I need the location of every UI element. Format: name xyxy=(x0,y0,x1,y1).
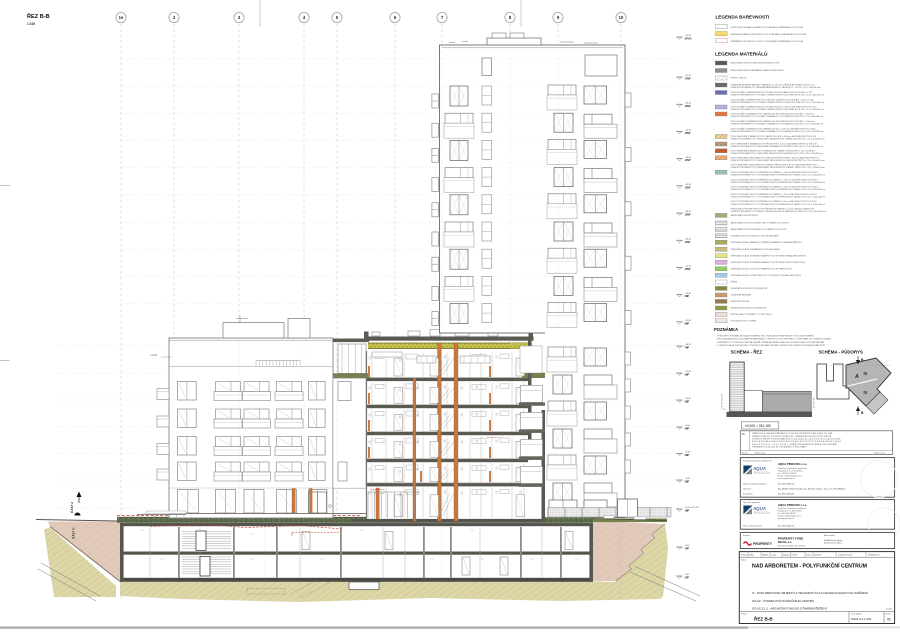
svg-text:B.3.02, B.3.04, B4.01, B.4.02,: B.3.02, B.3.04, B4.01, B.4.02, B.6.04, B… xyxy=(752,441,842,443)
svg-text:AQUA PROCON s.r.o.: AQUA PROCON s.r.o. xyxy=(778,462,808,466)
svg-text:OSBICE PORTHERM TYP O NENOSNÉ: OSBICE PORTHERM TYP O NENOSNÉ Z BROUŠENÝ… xyxy=(731,166,825,169)
svg-text:SO02.3.1.1.202: SO02.3.1.1.202 xyxy=(851,617,872,621)
svg-text:9NP: 9NP xyxy=(685,295,690,298)
svg-text:Ing. Petr Malaník: Ing. Petr Malaník xyxy=(778,493,795,496)
svg-text:7NP: 7NP xyxy=(685,347,690,350)
svg-text:A: A xyxy=(854,374,859,380)
svg-text:2PP 1PP 1NP 2NP: 2PP 1PP 1NP 2NP xyxy=(722,393,724,408)
svg-text:1e: 1e xyxy=(119,15,124,20)
svg-text:ŽELEZOBETONOVÉ PREFABRIKOVANÉ: ŽELEZOBETONOVÉ PREFABRIKOVANÉ KONSTRUKCE xyxy=(731,69,785,72)
svg-text:+14,31: +14,31 xyxy=(150,354,158,357)
svg-text:HUMÓZNÍ VRSTVA: HUMÓZNÍ VRSTVA xyxy=(731,300,750,303)
svg-text:1NP: 1NP xyxy=(685,510,690,513)
svg-text:ÚPRAVY DISPOZIC V BYTECH 2.NP: ÚPRAVY DISPOZIC V BYTECH 2.NP AŽ 7.NP - … xyxy=(752,435,832,438)
svg-text:2NP: 2NP xyxy=(685,481,690,484)
svg-text:OSBICE PORTHERM TYP O NENOSNÉ: OSBICE PORTHERM TYP O NENOSNÉ Z AKUSTICK… xyxy=(731,152,824,155)
svg-text:TEPELNÁ IZOLACE Z EXPANDOVANÉH: TEPELNÁ IZOLACE Z EXPANDOVANÉHO POLYSTYR… xyxy=(731,261,806,264)
svg-text:ZDIVO Z PÓROBETONOVÝCH PŘESNÝC: ZDIVO Z PÓROBETONOVÝCH PŘESNÝCH TVÁRNIC … xyxy=(731,193,818,196)
svg-text:1.23: 1.23 xyxy=(575,559,579,561)
svg-text:Datum revize: Datum revize xyxy=(874,452,885,455)
svg-text:SO 02.3.1.1 - ARCHITEKTONICKO: SO 02.3.1.1 - ARCHITEKTONICKO STAVEBNÍ Ř… xyxy=(752,605,827,610)
svg-text:Příloha: Příloha xyxy=(741,614,748,616)
svg-text:Měřítko: Měřítko xyxy=(762,553,770,556)
svg-text:Hlavní inženýr projektu: Hlavní inženýr projektu xyxy=(743,524,762,527)
svg-text:ZMĚNĚNÉ KONSTRUKCE OPROTI PLAT: ZMĚNĚNÉ KONSTRUKCE OPROTI PLATNÉMU STAVE… xyxy=(731,40,804,43)
svg-text:Kontroloval: Kontroloval xyxy=(743,493,753,496)
svg-text:06: 06 xyxy=(887,617,891,621)
svg-text:ZDIVO NENOSNÉ Z BROUŠENÝCH TVÁ: ZDIVO NENOSNÉ Z BROUŠENÝCH TVÁRNIC PŘÍČK… xyxy=(731,164,819,167)
svg-text:1.23: 1.23 xyxy=(470,530,474,532)
svg-text:ZPĚTNÝ ZÁSYP HUTNĚNÝ PO VRSTVÁ: ZPĚTNÝ ZÁSYP HUTNĚNÝ PO VRSTVÁCH xyxy=(731,313,773,316)
svg-text:Stupeň: Stupeň xyxy=(783,553,789,556)
svg-text:OSBICE PORTHERM TYP O Z PÓROBE: OSBICE PORTHERM TYP O Z PÓROBETONOVÝCH P… xyxy=(731,181,826,184)
svg-text:ZDIVO Z PÓROBETONOVÝCH PŘESNÝC: ZDIVO Z PÓROBETONOVÝCH PŘESNÝCH TVÁRNIC … xyxy=(731,200,818,203)
svg-text:SÁDROKARTONOVÉ PODHLEDY S POŽÁ: SÁDROKARTONOVÉ PODHLEDY S POŽÁRNÍ ODOLNO… xyxy=(731,228,788,231)
svg-text:ZTRACENÉ BEDNĚNÍ: ZTRACENÉ BEDNĚNÍ xyxy=(731,294,752,297)
svg-text:- PŮVODNÍ BAREVNOST A OZNAČENÍ: - PŮVODNÍ BAREVNOST A OZNAČENÍ MATERIÁLŮ… xyxy=(716,338,832,341)
svg-text:POZNÁMKA: POZNÁMKA xyxy=(714,327,738,332)
svg-text:Investor: Investor xyxy=(743,534,750,537)
svg-text:NEREALIZOVANÉ KONSTRUKCE DLE P: NEREALIZOVANÉ KONSTRUKCE DLE PLATNÉHO ST… xyxy=(731,33,807,36)
svg-text:KONSTRUKCE REALIZOVANÉ DLE PLA: KONSTRUKCE REALIZOVANÉ DLE PLATNÉHO STAV… xyxy=(731,26,804,29)
svg-text:ŽELEZOBETONOVÉ KONSTRUKCE MONO: ŽELEZOBETONOVÉ KONSTRUKCE MONOLITICKÉ xyxy=(731,62,780,65)
svg-text:Vyhotovil: Vyhotovil xyxy=(743,488,751,491)
svg-text:ZTRACENÉ BEDNĚNÍ BEDNÍCÍ TVÁRN: ZTRACENÉ BEDNĚNÍ BEDNÍCÍ TVÁRNICE TL. 25… xyxy=(731,84,816,87)
svg-text:VEGETAČNÍ SOUVRSTVÍ INTENZIVNÍ: VEGETAČNÍ SOUVRSTVÍ INTENZIVNÍ xyxy=(731,307,767,310)
svg-text:11NP: 11NP xyxy=(685,241,691,244)
svg-text:SÁDROKARTONOVÉ PODHLEDY BEZ PO: SÁDROKARTONOVÉ PODHLEDY BEZ POŽÁRNÍ ODOL… xyxy=(731,222,790,225)
svg-text:OSBICE PORTHERM TYP O NENOSNÉ: OSBICE PORTHERM TYP O NENOSNÉ Z BENÁTSKÝ… xyxy=(731,138,826,141)
svg-text:ZDIVO NENOSNÉ Z BENÁTSKÝCH TVÁ: ZDIVO NENOSNÉ Z BENÁTSKÝCH TVÁRNIC BLOKŮ… xyxy=(731,135,817,138)
svg-text:ZDIVO NENOSNÉ Z BROUŠENÝCH CIH: ZDIVO NENOSNÉ Z BROUŠENÝCH CIHELNÝCH PŘÍ… xyxy=(731,156,820,159)
svg-text:VEGETAČNÍ SOUVRSTVÍ EXTENZIVNÍ: VEGETAČNÍ SOUVRSTVÍ EXTENZIVNÍ xyxy=(731,287,768,290)
svg-text:1.23: 1.23 xyxy=(530,559,534,561)
svg-text:AQUA PROCON s.r.o.: AQUA PROCON s.r.o. xyxy=(778,503,808,507)
svg-text:06/2015: 06/2015 xyxy=(814,554,822,556)
svg-text:Formát: Formát xyxy=(741,553,748,556)
svg-text:ZMĚNY DLE PODKLADŮ PŘEDANÝCH 1: ZMĚNY DLE PODKLADŮ PŘEDANÝCH 17.04.2020 … xyxy=(752,432,833,435)
svg-text:1.23: 1.23 xyxy=(160,559,164,561)
svg-text:OSBICE PORTHERM TYP O Z PÓROBE: OSBICE PORTHERM TYP O Z PÓROBETONOVÝCH P… xyxy=(731,196,826,199)
svg-text:SICAV, a.s.: SICAV, a.s. xyxy=(778,540,793,544)
svg-text:III: III xyxy=(864,371,868,376)
svg-text:1PP: 1PP xyxy=(685,548,690,551)
svg-text:6NP: 6NP xyxy=(685,374,690,377)
svg-text:PROCON: PROCON xyxy=(754,471,771,475)
svg-text:10: 10 xyxy=(619,15,624,20)
svg-text:Ing. Bedřich Polachovský, Ing.: Ing. Bedřich Polachovský, Ing. Simona Vr… xyxy=(778,488,847,491)
svg-text:1.23: 1.23 xyxy=(480,559,484,561)
svg-text:3NP: 3NP xyxy=(685,454,690,457)
svg-text:Projektant obj./zodp. projekta: Projektant obj./zodp. projektant FV xyxy=(743,459,773,462)
svg-text:TEPELNÁ IZOLACE Z MINERÁLNÍCH: TEPELNÁ IZOLACE Z MINERÁLNÍCH VLÁKEN (MW… xyxy=(731,248,781,251)
svg-text:- V OBJEKTU BUDE PROVEDENO VYH: - V OBJEKTU BUDE PROVEDENO VYHODNOCENÍ R… xyxy=(716,344,825,347)
svg-text:- VEŠKERÉ KÓTY KONTROLOVAT NA: - VEŠKERÉ KÓTY KONTROLOVAT NA STAVBĚ, PŘ… xyxy=(716,341,824,344)
svg-text:ČÁST C: ČÁST C xyxy=(71,527,76,539)
svg-text:PROCON: PROCON xyxy=(754,511,771,515)
svg-text:TEPELNÁ IZOLACE ZAMEZUJÍCÍ ŠÍŘ: TEPELNÁ IZOLACE ZAMEZUJÍCÍ ŠÍŘENÍ PLAMEN… xyxy=(731,241,803,244)
svg-text:2PP: 2PP xyxy=(685,577,690,580)
svg-text:ZDIVO NOSNÉ Z VÁPENOPÍSKOVÝCH: ZDIVO NOSNÉ Z VÁPENOPÍSKOVÝCH CIHEL BLOK… xyxy=(731,106,817,109)
svg-text:Ing. Petr Malaník: Ing. Petr Malaník xyxy=(778,482,795,485)
svg-text:LEGENDA BAREVNOSTI: LEGENDA BAREVNOSTI xyxy=(716,15,770,20)
svg-text:16NP: 16NP xyxy=(685,105,691,108)
svg-text:OSBICE PORTHERM TYP O NENOSNÉ: OSBICE PORTHERM TYP O NENOSNÉ Z BROUŠENÝ… xyxy=(731,159,825,162)
svg-text:Revize: Revize xyxy=(886,614,892,616)
svg-text:OSBICE PORTHERM TYP DÍVKA Z PÓ: OSBICE PORTHERM TYP DÍVKA Z PÓROBETONOVÝ… xyxy=(731,210,827,213)
svg-text:DSPS: DSPS xyxy=(792,554,798,556)
svg-text:PROPERITY: PROPERITY xyxy=(753,542,773,546)
svg-text:1NP 2NP 3NP: 1NP 2NP 3NP xyxy=(814,396,816,408)
svg-text:12NP: 12NP xyxy=(685,214,691,217)
svg-text:OSBICE PORTHERM TYP O NOSNÉ Z: OSBICE PORTHERM TYP O NOSNÉ Z VÁPENOPÍSK… xyxy=(731,108,825,111)
svg-text:ZDIVO NENOSNÉ Z AKUSTICKÝCH BE: ZDIVO NENOSNÉ Z AKUSTICKÝCH BEDNÍCÍCH TV… xyxy=(731,149,816,152)
svg-text:TEPELNÁ IZOLACE Z EXTRUDOVANÉH: TEPELNÁ IZOLACE Z EXTRUDOVANÉHO POLYSTYR… xyxy=(731,267,793,270)
svg-text:17NP: 17NP xyxy=(685,78,691,81)
svg-text:Ing. Petr Malaník: Ing. Petr Malaník xyxy=(778,524,795,527)
svg-text:Název: Název xyxy=(741,560,746,562)
svg-text:ZDIVO Z PÓROBETONOVÝCH PŘESNÝC: ZDIVO Z PÓROBETONOVÝCH PŘESNÝCH TVÁRNIC … xyxy=(731,186,819,189)
svg-text:1.23: 1.23 xyxy=(430,559,434,561)
svg-text:OSBICE PORTHERM TYP CENÉ BEDNĚ: OSBICE PORTHERM TYP CENÉ BEDNĚNÍ BEDNÍCÍ… xyxy=(731,86,821,89)
svg-text:ZDIVO Z PÓROBETONOVÝCH PŘESNÝC: ZDIVO Z PÓROBETONOVÝCH PŘESNÝCH TVÁRNIC … xyxy=(731,178,819,181)
svg-text:SCHÉMA - ŘEZ: SCHÉMA - ŘEZ xyxy=(731,350,763,355)
svg-text:PŘEDANÝCH 20.05.2020 JE ZOHLED: PŘEDANÝCH 20.05.2020 JE ZOHLEDNĚNO S PŘÍ… xyxy=(752,445,806,448)
svg-text:8NP: 8NP xyxy=(685,322,690,325)
svg-text:13NP: 13NP xyxy=(685,186,691,189)
svg-text:OSBICE PORTHERM TYP O NOSNÉ Z: OSBICE PORTHERM TYP O NOSNÉ Z VÁPENOPÍSK… xyxy=(731,94,825,97)
svg-text:5NP: 5NP xyxy=(685,401,690,404)
svg-text:OSBICE PORTHERM TYP O NOSNÉ Z: OSBICE PORTHERM TYP O NOSNÉ Z VÁPENOPÍSK… xyxy=(731,101,825,104)
svg-text:SÁDROKARTONOVÉ PŘÍČKY: SÁDROKARTONOVÉ PŘÍČKY xyxy=(731,214,760,217)
svg-text:TEPELNÁ IZOLACE Z PĚNOVÉHO POL: TEPELNÁ IZOLACE Z PĚNOVÉHO POLYSTYRENU P… xyxy=(731,274,802,277)
svg-text:B.11.8, B.12.4, B.5.1, L, B.11: B.11.8, B.12.4, B.5.1, L, B.11.L, B.15.8… xyxy=(752,443,838,446)
svg-text:1.23: 1.23 xyxy=(320,559,324,561)
svg-text:ZDIVO NOSNÉ Z KERAMICKÝCH TVÁR: ZDIVO NOSNÉ Z KERAMICKÝCH TVÁRNIC BLOKŮ,… xyxy=(731,128,817,131)
svg-text:1.23: 1.23 xyxy=(250,559,254,561)
svg-text:OSBICE PORTHERM TYP O NENOSNÉ: OSBICE PORTHERM TYP O NENOSNÉ Z KERAMICK… xyxy=(731,145,824,148)
svg-text:Brno-Kraví hora/Brno: Brno-Kraví hora/Brno xyxy=(824,542,842,545)
svg-text:1:100: 1:100 xyxy=(27,22,35,26)
svg-text:ŘEZ B-B: ŘEZ B-B xyxy=(27,12,50,20)
svg-text:1.23: 1.23 xyxy=(250,534,254,536)
svg-text:ČÁST A: ČÁST A xyxy=(69,501,74,513)
svg-text:Zakázkové číslo: Zakázkové číslo xyxy=(838,554,853,556)
svg-text:TEPELNÁ IZOLACE Z EXPANDOVANÉH: TEPELNÁ IZOLACE Z EXPANDOVANÉHO POLYSTYR… xyxy=(731,254,807,257)
svg-text:www.aquaprocon.cz: www.aquaprocon.cz xyxy=(778,477,795,480)
svg-text:ATIKA: ATIKA xyxy=(685,38,692,41)
svg-text:SO 02 - STAVBA POLYFUNKČNÍHO C: SO 02 - STAVBA POLYFUNKČNÍHO CENTRA xyxy=(752,598,814,603)
svg-text:OSBICE PORTHERM TYP O Z PÓROBE: OSBICE PORTHERM TYP O Z PÓROBETONOVÝCH P… xyxy=(731,203,826,206)
svg-text:ZDIVO NOSNÉ Z KERAMICKÝCH TVÁR: ZDIVO NOSNÉ Z KERAMICKÝCH TVÁRNIC BLOKŮ … xyxy=(731,120,815,123)
svg-text:Datum: Datum xyxy=(806,553,812,556)
svg-text:Soutisk: Soutisk xyxy=(886,607,892,610)
svg-text:PŮVODNÍ ROSTLÝ TERÉN: PŮVODNÍ ROSTLÝ TERÉN xyxy=(731,319,757,322)
svg-text:OSBICE PORTHERM TYP O NOSNÉ Z: OSBICE PORTHERM TYP O NOSNÉ Z KERAMICKÝC… xyxy=(731,130,824,133)
svg-text:1.23: 1.23 xyxy=(360,530,364,532)
svg-text:PŘIZDÍVKA Z PÓROBETONOVÝCH PŘE: PŘIZDÍVKA Z PÓROBETONOVÝCH PŘESNÝCH TVÁR… xyxy=(731,207,815,210)
svg-text:- VÝŠKOVÉ KOORDINAČNÍ ÚDAJE PO: - VÝŠKOVÉ KOORDINAČNÍ ÚDAJE PODÉHAJÍ ČSN… xyxy=(716,335,814,338)
svg-text:Nad Arboretem/Bystrc: Nad Arboretem/Bystrc xyxy=(824,539,843,542)
svg-text:Generální projektant: Generální projektant xyxy=(743,501,761,504)
svg-text:ŘEZ B-B: ŘEZ B-B xyxy=(754,614,773,621)
svg-text:1.23: 1.23 xyxy=(140,530,144,532)
svg-text:ZDIVO NOSNÉ Z VÁPENOPÍSKOVÝCH: ZDIVO NOSNÉ Z VÁPENOPÍSKOVÝCH BLOKŮ S AK… xyxy=(731,99,814,102)
svg-text:Revize: Revize xyxy=(742,453,748,455)
svg-text:OSBICE PORTHERM TYP O Z PÓROBE: OSBICE PORTHERM TYP O Z PÓROBETONOVÝCH P… xyxy=(731,174,826,177)
svg-text:OSBICE PORTHERM TYP O NOSNÉ Z: OSBICE PORTHERM TYP O NOSNÉ Z KERAMICKÝC… xyxy=(731,115,824,118)
svg-text:SCHÉMA - PŮDORYS: SCHÉMA - PŮDORYS xyxy=(819,350,863,355)
svg-text:Popis revize: Popis revize xyxy=(755,452,765,455)
svg-text:NAD ARBORETEM - POLYFUNKČNÍ CE: NAD ARBORETEM - POLYFUNKČNÍ CENTRUM xyxy=(752,562,867,570)
svg-text:ZDIVO NENOSNÉ Z KERAMICKÝCH PŘ: ZDIVO NENOSNÉ Z KERAMICKÝCH PŘÍČKOVEK tl… xyxy=(731,143,817,146)
svg-text:14NP: 14NP xyxy=(685,159,691,162)
svg-text:PROSTÝ BETON: PROSTÝ BETON xyxy=(731,77,748,80)
svg-text:Číslo přílohy: Číslo přílohy xyxy=(851,613,862,616)
svg-text:Místo stavby: Místo stavby xyxy=(824,534,835,537)
svg-text:15NP: 15NP xyxy=(685,132,691,135)
svg-text:www.aquaprocon.cz: www.aquaprocon.cz xyxy=(778,517,795,520)
svg-text:ZDIVO NOSNÉ Z VÁPENOPÍSKOVÝCH: ZDIVO NOSNÉ Z VÁPENOPÍSKOVÝCH CIHEL BLOK… xyxy=(731,91,814,94)
svg-text:12345: 12345 xyxy=(721,409,726,411)
svg-text:ŠTĚRK: ŠTĚRK xyxy=(731,281,738,284)
svg-text:ZDIVO Z PÓROBETONOVÝCH PŘESNÝC: ZDIVO Z PÓROBETONOVÝCH PŘESNÝCH TVÁRNIC … xyxy=(731,171,819,174)
svg-text:PODKARTONOVÝ PODHLED V PŮLČÍM: PODKARTONOVÝ PODHLED V PŮLČÍM ZÁKLADĚ xyxy=(731,234,779,237)
svg-text:Hvězdova 1716/2b, 140 00 Praha: Hvězdova 1716/2b, 140 00 Praha xyxy=(778,544,806,547)
svg-text:OSBICE PORTHERM TYP O NOSNÉ Z: OSBICE PORTHERM TYP O NOSNÉ Z KERAMICKÝC… xyxy=(731,123,824,126)
svg-text:1:100: 1:100 xyxy=(771,554,777,556)
svg-text:±0,000 = 251,180: ±0,000 = 251,180 xyxy=(745,424,771,428)
svg-text:IV: IV xyxy=(864,390,868,395)
svg-text:10NP: 10NP xyxy=(685,268,691,271)
svg-text:4NP: 4NP xyxy=(685,428,690,431)
svg-text:POSUNUTÍ PŘÍČEK V KOUPELNÁCH B: POSUNUTÍ PŘÍČEK V KOUPELNÁCH B.1.02, B.1… xyxy=(752,438,841,441)
svg-text:3265/001-20: 3265/001-20 xyxy=(868,554,880,556)
svg-text:ZDIVO NOSNÉ Z KERAMICKÝCH TVÁR: ZDIVO NOSNÉ Z KERAMICKÝCH TVÁRNIC BLOKŮ … xyxy=(731,113,815,116)
svg-text:Vypracoval/zodp. projektant: Vypracoval/zodp. projektant xyxy=(743,482,767,485)
svg-text:O - DOKUMENTACE OBJEKTŮ A TECH: O - DOKUMENTACE OBJEKTŮ A TECHNICKÝCH A … xyxy=(752,590,868,595)
svg-text:OSBICE PORTHERM TYP O Z PÓROBE: OSBICE PORTHERM TYP O Z PÓROBETONOVÝCH P… xyxy=(731,188,826,191)
